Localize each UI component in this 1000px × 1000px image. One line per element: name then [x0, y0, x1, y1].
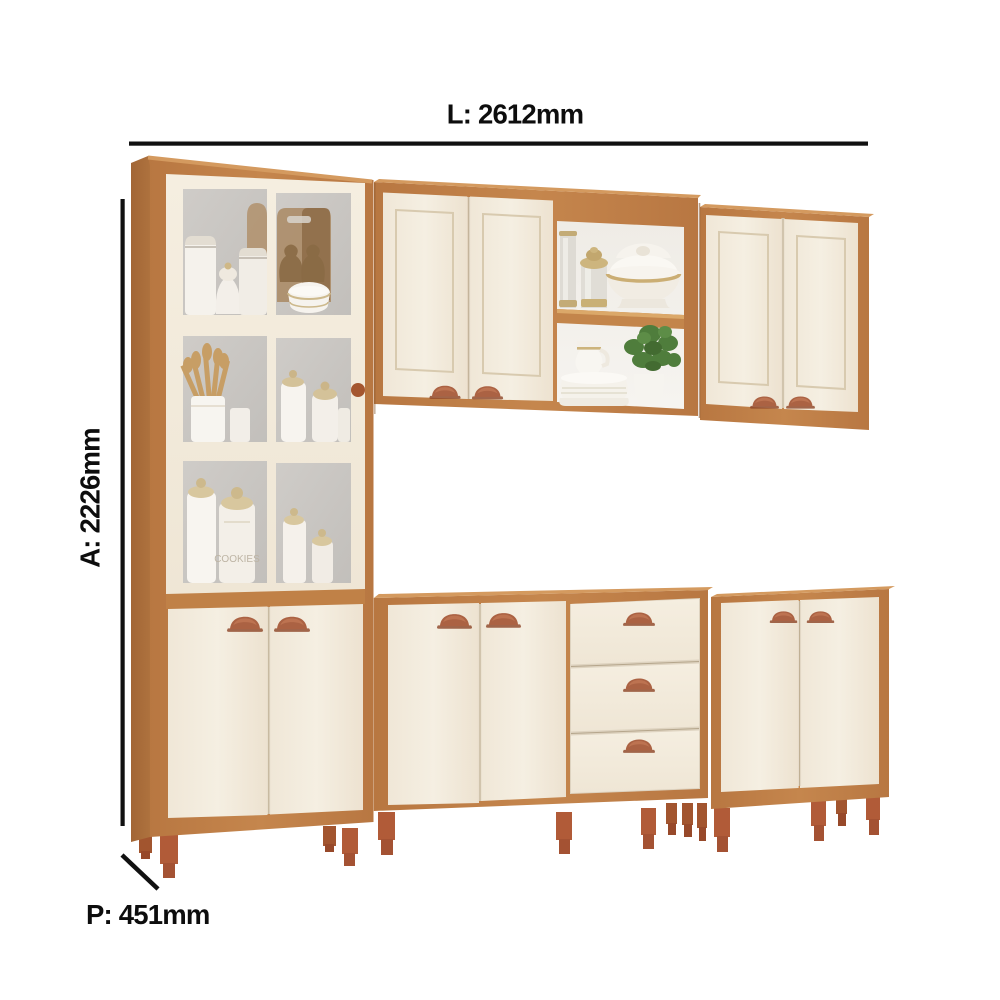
svg-text:L: 2612mm: L: 2612mm [447, 99, 583, 130]
svg-text:A: 2226mm: A: 2226mm [75, 428, 106, 568]
svg-text:P: 451mm: P: 451mm [86, 899, 210, 930]
svg-text:COOKIES: COOKIES [214, 554, 260, 565]
